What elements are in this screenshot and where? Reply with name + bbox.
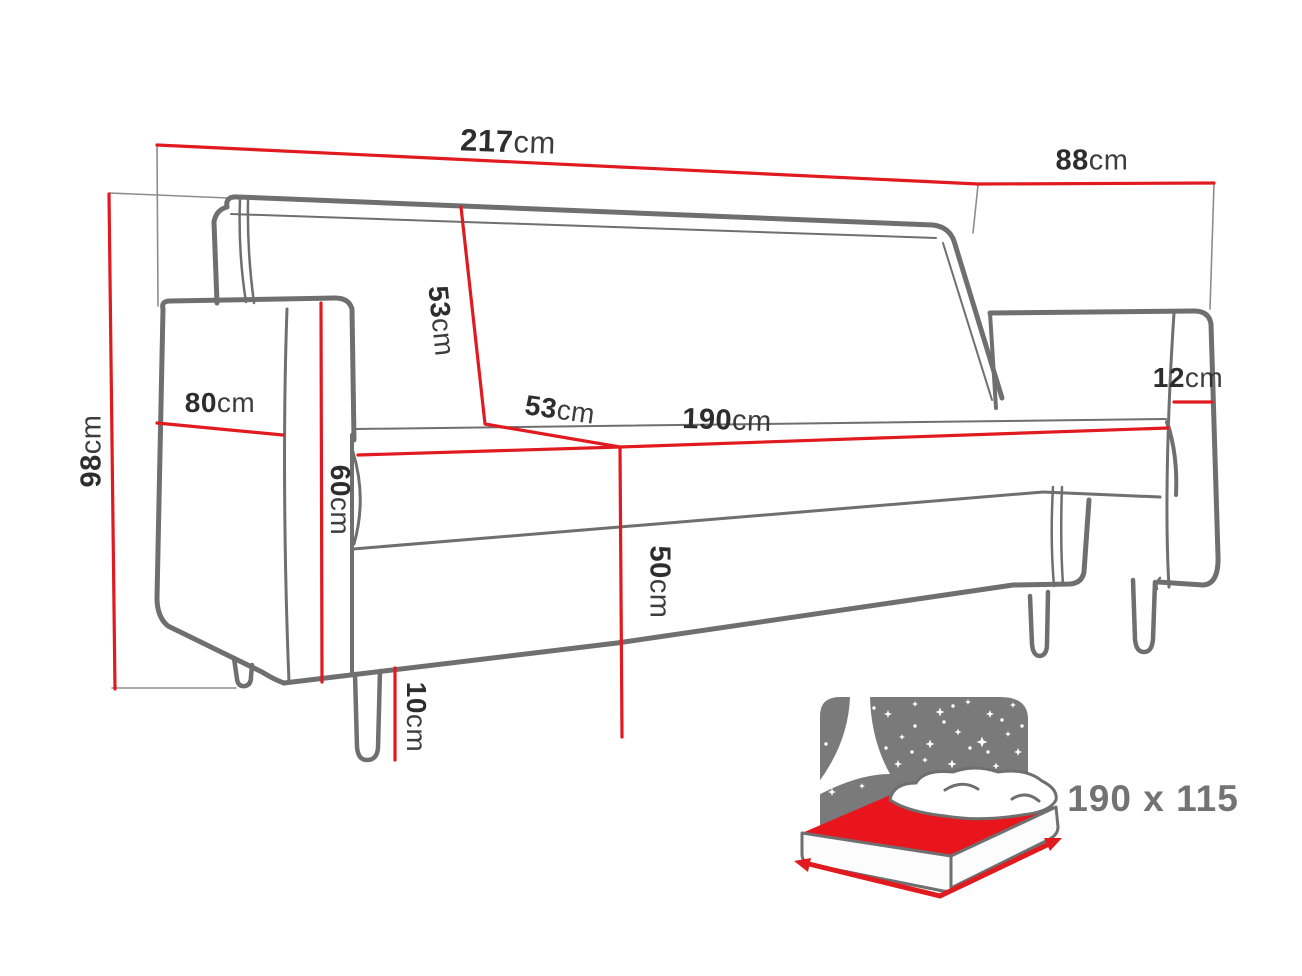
dim-armrest-width-label: 12cm <box>1153 362 1223 394</box>
dim-value: 217 <box>460 122 514 159</box>
sofa-dimension-diagram: 217cm 88cm 98cm 53cm 80cm 60cm 53cm 190c… <box>0 0 1302 976</box>
dim-unit: cm <box>217 387 255 418</box>
sofa-seat <box>284 419 1176 683</box>
dim-unit: cm <box>644 579 676 619</box>
dim-unit: cm <box>325 497 356 535</box>
dim-value: 12 <box>1153 362 1185 393</box>
dim-line-armrest-height <box>321 303 322 682</box>
dim-total-depth-label: 88cm <box>1056 145 1129 178</box>
dim-value: 53 <box>422 284 456 319</box>
dim-line-total-depth <box>978 183 1214 184</box>
dim-line-total-height <box>109 194 115 689</box>
dim-unit: cm <box>1185 362 1223 393</box>
dim-value: 190 <box>682 403 733 437</box>
dim-value: 60 <box>325 465 356 497</box>
dim-unit: cm <box>1089 145 1129 177</box>
dim-unit: cm <box>426 316 461 357</box>
sleeping-area-label: 190 x 115 <box>1067 778 1239 820</box>
dim-seat-height-label: 50cm <box>643 546 676 619</box>
dim-value: 80 <box>185 387 217 418</box>
dim-armrest-height-label: 60cm <box>324 465 356 535</box>
dimension-lines <box>109 145 1214 760</box>
dim-line-seat-height <box>620 447 622 737</box>
dim-value: 88 <box>1056 145 1089 177</box>
dim-unit: cm <box>76 415 108 455</box>
dim-leg-height-label: 10cm <box>400 682 432 752</box>
dim-unit: cm <box>513 124 557 160</box>
dim-total-height-label: 98cm <box>76 415 109 488</box>
dim-value: 98 <box>76 454 108 487</box>
bed-icon <box>794 697 1062 896</box>
dim-line-armrest-depth <box>157 423 283 435</box>
dim-total-width-label: 217cm <box>460 122 557 161</box>
dim-value: 10 <box>401 682 432 714</box>
dim-value: 50 <box>644 546 676 579</box>
dim-unit: cm <box>401 714 432 752</box>
sofa-right-armrest <box>990 311 1218 589</box>
dim-unit: cm <box>732 405 773 438</box>
dim-value: 53 <box>523 389 559 424</box>
dim-line-total-width <box>157 145 978 184</box>
dim-unit: cm <box>555 394 597 430</box>
sofa-drawing <box>109 145 1218 760</box>
dim-armrest-depth-label: 80cm <box>185 387 255 419</box>
dim-seat-width-label: 190cm <box>682 403 773 439</box>
